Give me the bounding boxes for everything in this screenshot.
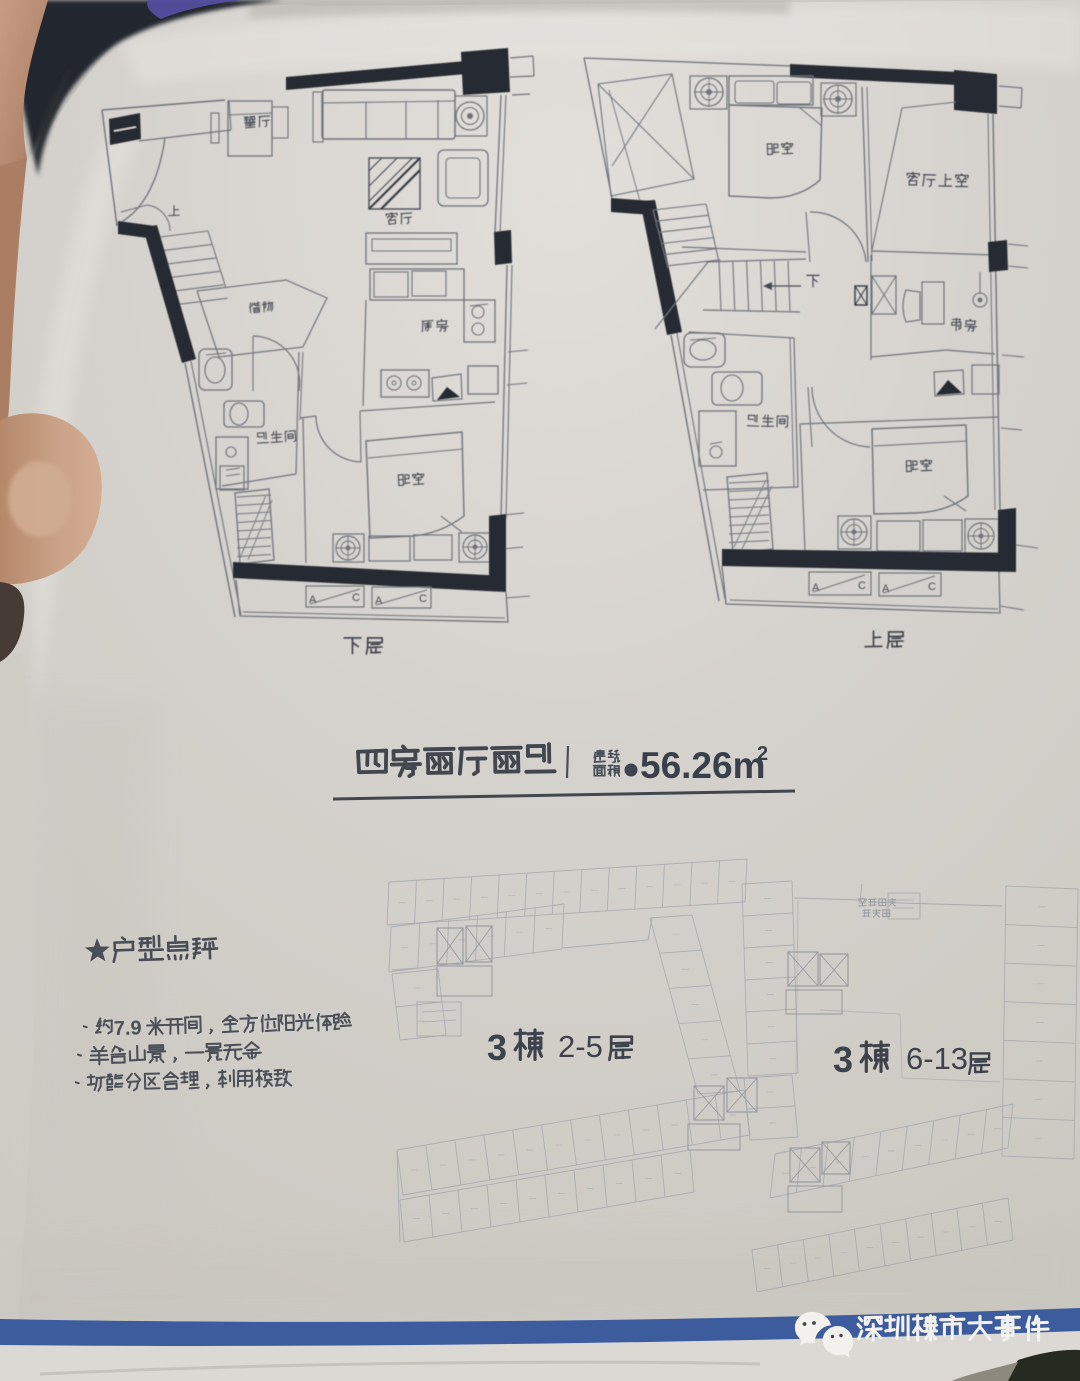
- svg-text:A: A: [812, 582, 820, 594]
- svg-text:2: 2: [757, 743, 768, 765]
- svg-text:6-13: 6-13: [906, 1041, 968, 1076]
- svg-text:3: 3: [833, 1039, 853, 1080]
- svg-text:A: A: [882, 583, 890, 595]
- svg-text:2-5: 2-5: [558, 1029, 603, 1064]
- svg-text:56.26m: 56.26m: [640, 745, 766, 786]
- svg-text:3: 3: [487, 1027, 507, 1068]
- svg-text:C: C: [928, 581, 936, 593]
- svg-text:A: A: [375, 595, 383, 607]
- svg-text:C: C: [858, 580, 866, 592]
- svg-text:C: C: [352, 592, 360, 604]
- svg-text:A: A: [309, 594, 317, 606]
- svg-text:7.9: 7.9: [114, 1017, 142, 1040]
- svg-text:C: C: [419, 593, 427, 605]
